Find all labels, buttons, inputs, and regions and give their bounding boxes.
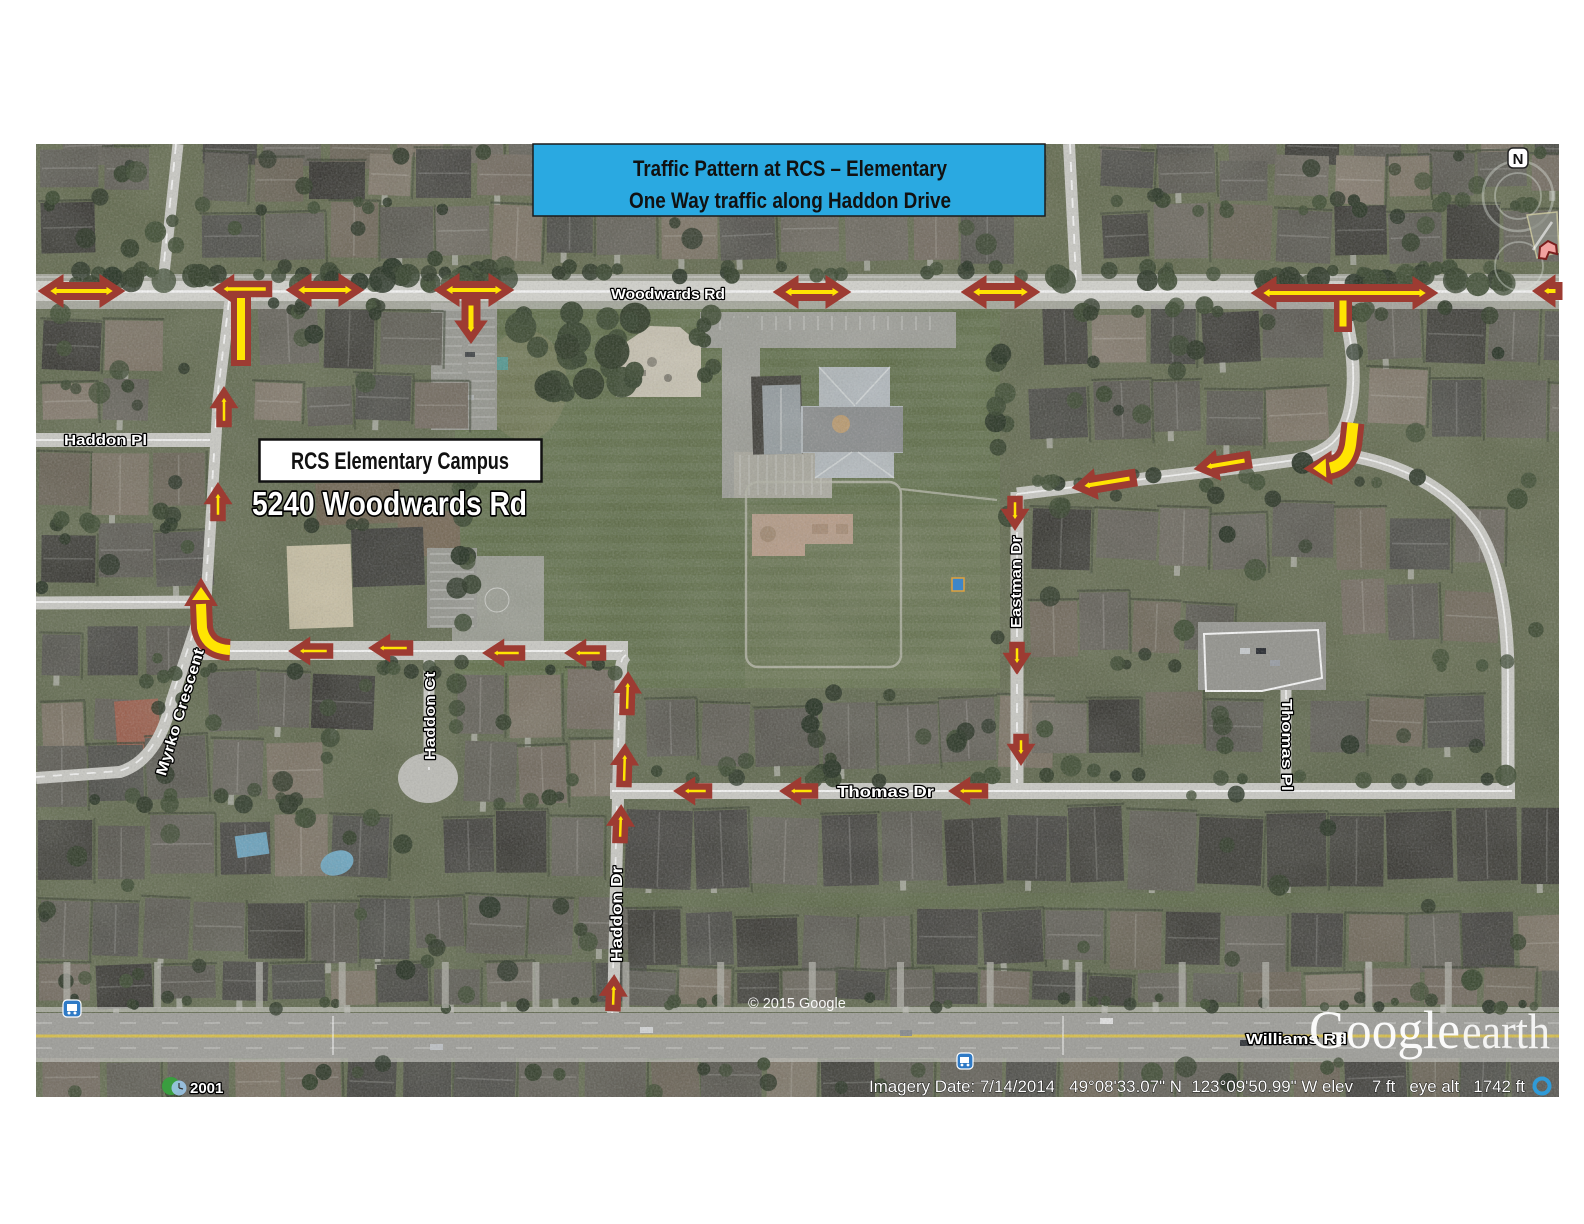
svg-text:2001: 2001: [190, 1080, 223, 1097]
svg-text:One Way traffic along Haddon D: One Way traffic along Haddon Drive: [629, 188, 951, 213]
svg-text:N: N: [1513, 151, 1524, 168]
svg-text:Thomas Pl: Thomas Pl: [1278, 699, 1295, 791]
svg-text:Haddon Ct: Haddon Ct: [422, 672, 439, 760]
svg-text:5240 Woodwards Rd: 5240 Woodwards Rd: [252, 485, 527, 522]
svg-text:earth: earth: [1462, 1003, 1550, 1059]
svg-text:RCS Elementary Campus: RCS Elementary Campus: [291, 448, 509, 475]
svg-text:© 2015 Google: © 2015 Google: [748, 996, 846, 1012]
svg-text:Woodwards Rd: Woodwards Rd: [611, 286, 725, 303]
svg-text:Google: Google: [1309, 1000, 1460, 1060]
svg-text:Eastman Dr: Eastman Dr: [1008, 536, 1025, 628]
svg-text:Haddon Dr: Haddon Dr: [609, 866, 626, 962]
svg-text:Thomas Dr: Thomas Dr: [837, 784, 934, 801]
svg-text:Imagery Date: 7/14/2014 49°0: Imagery Date: 7/14/2014 49°08'33.07" N 1…: [869, 1077, 1525, 1096]
svg-text:Traffic Pattern at RCS – Eleme: Traffic Pattern at RCS – Elementary: [633, 156, 948, 181]
svg-text:Haddon Pl: Haddon Pl: [64, 432, 147, 449]
